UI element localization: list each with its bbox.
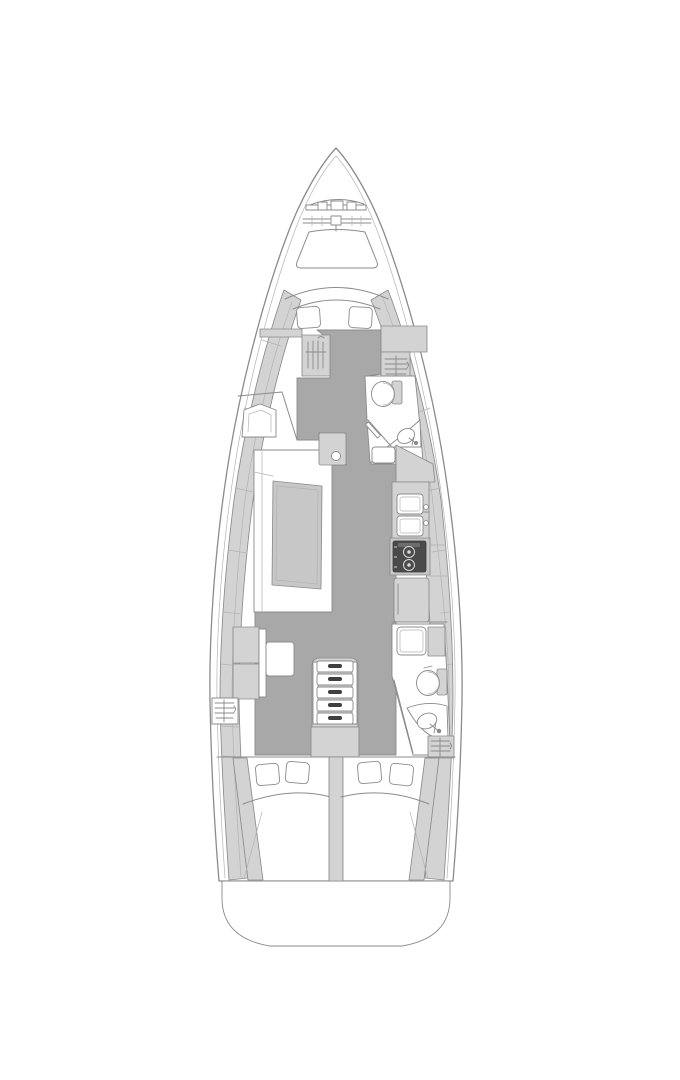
boat-floor-plan (0, 0, 680, 1080)
nav-seat (266, 642, 294, 676)
toilet (417, 671, 440, 696)
mast-circle (332, 452, 341, 461)
transom (219, 881, 453, 946)
pillow (389, 763, 414, 786)
head-entry-step (372, 447, 395, 463)
transom-outline (222, 881, 450, 946)
step-landing (311, 727, 359, 757)
port-cabinet (233, 664, 259, 699)
companionway-steps (311, 658, 359, 757)
aft-cabin-divider (329, 757, 343, 881)
toilet (372, 382, 395, 407)
mast-post-cabinet (319, 433, 346, 465)
forward-head (365, 376, 423, 463)
salon-table (272, 481, 322, 589)
forward-berth-pillow-port (296, 306, 320, 329)
fridge (394, 578, 429, 622)
port-cabinet (233, 627, 259, 663)
forward-shelf-starboard (381, 326, 427, 352)
shower-tray (397, 627, 426, 655)
stove (390, 538, 430, 575)
pillow (357, 761, 382, 784)
page (0, 0, 680, 1080)
forward-wardrobe-port (302, 335, 330, 376)
pillow (285, 761, 310, 784)
steps (317, 661, 353, 724)
forward-bulkhead-port (260, 329, 302, 337)
forward-berth-pillow-starboard (348, 306, 372, 328)
aft-wardrobe-port (212, 698, 238, 724)
pillow (255, 763, 280, 786)
aft-wardrobe-starboard (428, 736, 454, 758)
